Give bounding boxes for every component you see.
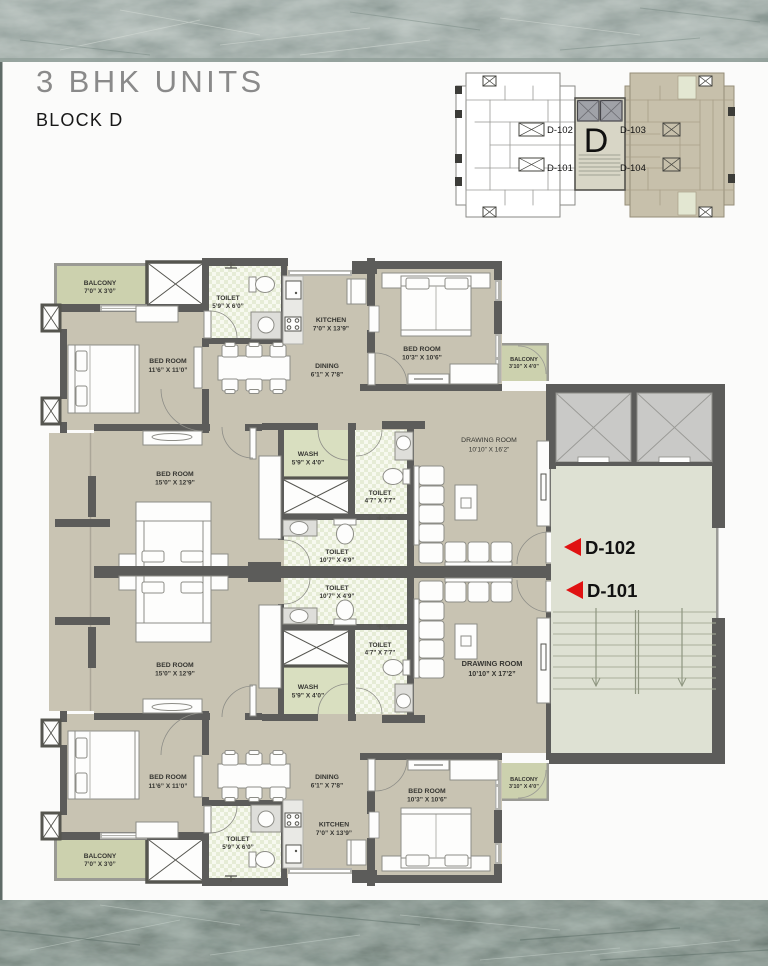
- svg-text:15’0” X 12’9”: 15’0” X 12’9”: [155, 480, 195, 487]
- svg-text:TOILET: TOILET: [216, 295, 239, 302]
- svg-text:BALCONY: BALCONY: [84, 853, 117, 860]
- svg-text:BALCONY: BALCONY: [84, 280, 117, 287]
- svg-text:4’7” X 7’7”: 4’7” X 7’7”: [365, 650, 396, 657]
- svg-text:3’10” X 4’0”: 3’10” X 4’0”: [509, 364, 539, 370]
- svg-text:3 BHK UNITS: 3 BHK UNITS: [36, 64, 265, 99]
- svg-text:7’0” X 13’9”: 7’0” X 13’9”: [316, 830, 352, 837]
- svg-text:DINING: DINING: [315, 774, 339, 781]
- svg-text:10’10” X 16’2”: 10’10” X 16’2”: [469, 447, 509, 454]
- svg-text:10’10” X 17’2”: 10’10” X 17’2”: [468, 670, 516, 678]
- svg-text:3’10” X 4’0”: 3’10” X 4’0”: [509, 784, 539, 790]
- svg-text:BLOCK D: BLOCK D: [36, 110, 123, 130]
- svg-text:10’7” X 4’9”: 10’7” X 4’9”: [319, 557, 354, 564]
- svg-text:5’9” X 6’0”: 5’9” X 6’0”: [222, 844, 254, 851]
- svg-text:TOILET: TOILET: [369, 490, 392, 497]
- svg-text:10’3” X 10’6”: 10’3” X 10’6”: [407, 797, 447, 804]
- svg-text:7’0” X 13’9”: 7’0” X 13’9”: [313, 326, 349, 333]
- svg-text:D-101: D-101: [547, 163, 573, 174]
- svg-text:BALCONY: BALCONY: [510, 357, 538, 363]
- svg-text:6’1” X 7’8”: 6’1” X 7’8”: [311, 783, 344, 790]
- svg-text:11’6” X 11’0”: 11’6” X 11’0”: [148, 783, 187, 790]
- svg-text:4’7” X 7’7”: 4’7” X 7’7”: [365, 498, 396, 505]
- svg-text:BED ROOM: BED ROOM: [149, 774, 187, 781]
- svg-text:BED ROOM: BED ROOM: [403, 346, 441, 353]
- svg-text:KITCHEN: KITCHEN: [319, 822, 349, 829]
- svg-text:D-103: D-103: [620, 125, 646, 136]
- svg-text:WASH: WASH: [298, 451, 318, 458]
- svg-text:BED ROOM: BED ROOM: [156, 471, 194, 478]
- svg-text:11’6” X 11’0”: 11’6” X 11’0”: [148, 367, 187, 374]
- svg-text:7’0” X 3’0”: 7’0” X 3’0”: [84, 861, 116, 868]
- svg-text:TOILET: TOILET: [226, 836, 249, 843]
- svg-text:D-102: D-102: [547, 125, 573, 136]
- svg-text:D: D: [584, 122, 609, 160]
- svg-text:DINING: DINING: [315, 363, 339, 370]
- svg-text:DRAWING ROOM: DRAWING ROOM: [462, 659, 523, 668]
- svg-text:5’9” X 6’0”: 5’9” X 6’0”: [212, 303, 244, 310]
- svg-text:BALCONY: BALCONY: [510, 777, 538, 783]
- svg-text:15’0” X 12’9”: 15’0” X 12’9”: [155, 671, 195, 678]
- svg-text:TOILET: TOILET: [369, 642, 392, 649]
- svg-text:D-101: D-101: [587, 580, 637, 601]
- svg-text:D-104: D-104: [620, 163, 646, 174]
- svg-text:10’7” X 4’9”: 10’7” X 4’9”: [319, 593, 354, 600]
- svg-text:TOILET: TOILET: [325, 585, 348, 592]
- svg-text:WASH: WASH: [298, 684, 318, 691]
- svg-text:7’0” X 3’0”: 7’0” X 3’0”: [84, 288, 116, 295]
- svg-text:6’1” X 7’8”: 6’1” X 7’8”: [311, 372, 344, 379]
- svg-text:5’9” X 4’0”: 5’9” X 4’0”: [292, 693, 325, 700]
- svg-text:BED ROOM: BED ROOM: [149, 358, 187, 365]
- svg-text:BED ROOM: BED ROOM: [408, 788, 446, 795]
- svg-text:DRAWING ROOM: DRAWING ROOM: [461, 437, 517, 444]
- svg-text:KITCHEN: KITCHEN: [316, 317, 346, 324]
- svg-text:D-102: D-102: [585, 537, 635, 558]
- svg-text:10’3” X 10’6”: 10’3” X 10’6”: [402, 355, 442, 362]
- svg-text:5’9” X 4’0”: 5’9” X 4’0”: [292, 460, 325, 467]
- svg-text:BED ROOM: BED ROOM: [156, 662, 194, 669]
- svg-text:TOILET: TOILET: [325, 549, 348, 556]
